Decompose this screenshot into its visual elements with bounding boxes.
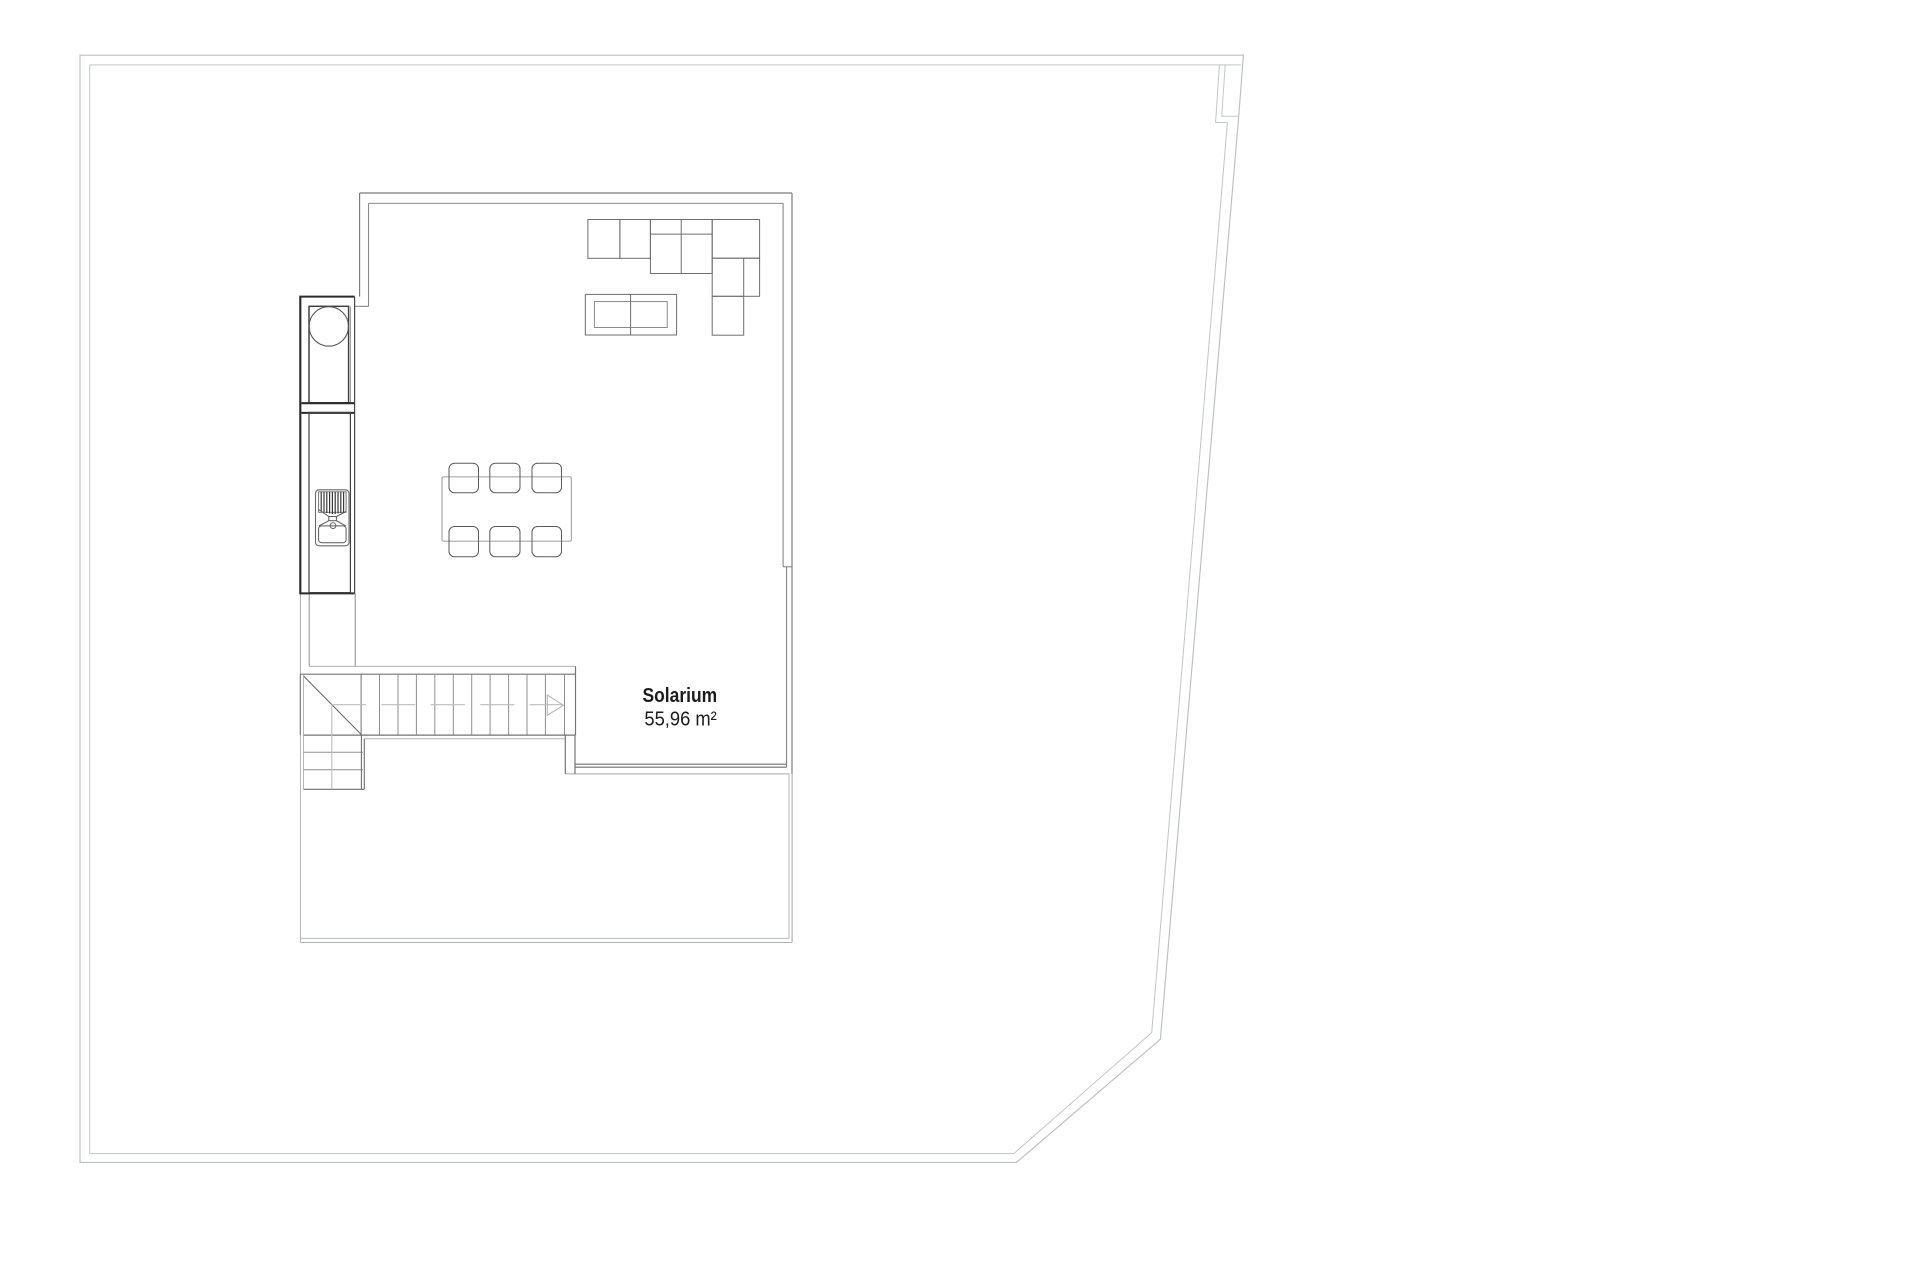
svg-text:Solarium: Solarium	[643, 684, 718, 707]
svg-text:55,96 m²: 55,96 m²	[644, 708, 717, 731]
